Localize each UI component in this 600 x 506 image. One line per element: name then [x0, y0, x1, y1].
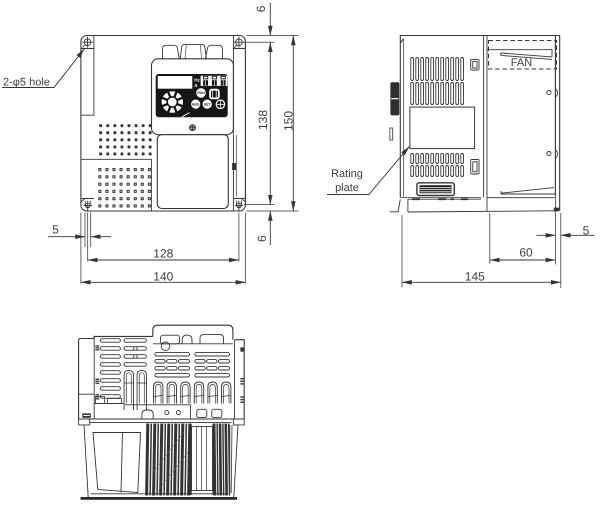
svg-text:6: 6	[255, 235, 269, 242]
svg-text:140: 140	[153, 270, 173, 284]
svg-text:RUN: RUN	[197, 91, 205, 95]
svg-text:5: 5	[583, 224, 590, 238]
svg-text:150: 150	[281, 111, 295, 131]
svg-text:145: 145	[465, 270, 485, 284]
svg-text:128: 128	[153, 247, 173, 261]
svg-text:Rating: Rating	[331, 168, 363, 180]
svg-text:138: 138	[256, 110, 270, 130]
svg-text:6: 6	[254, 5, 268, 12]
svg-text:2-φ5 hole: 2-φ5 hole	[3, 77, 50, 89]
svg-text:MOD: MOD	[192, 102, 200, 106]
svg-text:plate: plate	[335, 182, 359, 194]
svg-text:5: 5	[52, 223, 59, 237]
svg-text:60: 60	[519, 246, 533, 260]
svg-text:SET: SET	[204, 102, 212, 106]
svg-text:FAN: FAN	[511, 57, 532, 69]
svg-text:Hz: Hz	[194, 77, 200, 82]
